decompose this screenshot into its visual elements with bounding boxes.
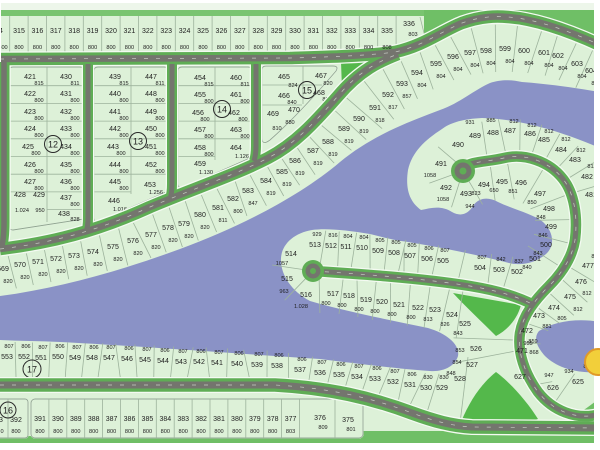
svg-text:603: 603 bbox=[571, 61, 583, 68]
svg-text:806: 806 bbox=[336, 362, 345, 368]
svg-text:456: 456 bbox=[192, 110, 204, 117]
svg-text:800: 800 bbox=[250, 429, 259, 435]
svg-text:820: 820 bbox=[74, 266, 83, 272]
svg-text:963: 963 bbox=[279, 289, 288, 295]
svg-text:326: 326 bbox=[216, 28, 228, 35]
svg-text:570: 570 bbox=[14, 262, 26, 269]
svg-text:800: 800 bbox=[232, 429, 241, 435]
svg-text:509: 509 bbox=[372, 248, 384, 255]
svg-text:548: 548 bbox=[86, 355, 98, 362]
svg-text:812: 812 bbox=[573, 307, 582, 313]
svg-text:800: 800 bbox=[214, 429, 223, 435]
svg-text:800: 800 bbox=[34, 98, 43, 104]
svg-text:804: 804 bbox=[558, 66, 567, 72]
svg-text:448: 448 bbox=[145, 91, 157, 98]
svg-text:592: 592 bbox=[382, 92, 394, 99]
svg-text:805: 805 bbox=[391, 240, 400, 246]
svg-text:885: 885 bbox=[486, 118, 495, 124]
svg-text:424: 424 bbox=[24, 126, 36, 133]
svg-text:521: 521 bbox=[393, 302, 405, 309]
svg-text:806: 806 bbox=[234, 351, 243, 357]
svg-text:590: 590 bbox=[353, 116, 365, 123]
svg-text:386: 386 bbox=[124, 416, 136, 423]
svg-text:539: 539 bbox=[251, 362, 263, 369]
svg-text:482: 482 bbox=[581, 174, 593, 181]
svg-text:800: 800 bbox=[200, 117, 209, 123]
svg-text:325: 325 bbox=[197, 28, 209, 35]
svg-text:457: 457 bbox=[194, 127, 206, 134]
svg-text:534: 534 bbox=[351, 374, 363, 381]
svg-text:425: 425 bbox=[22, 144, 34, 151]
svg-text:1057: 1057 bbox=[276, 261, 288, 267]
svg-text:475: 475 bbox=[564, 294, 576, 301]
svg-text:800: 800 bbox=[354, 307, 363, 313]
svg-text:815: 815 bbox=[34, 81, 43, 87]
svg-text:800: 800 bbox=[70, 98, 79, 104]
svg-text:13: 13 bbox=[133, 137, 143, 147]
svg-text:530: 530 bbox=[420, 385, 432, 392]
svg-text:800: 800 bbox=[70, 186, 79, 192]
svg-text:800: 800 bbox=[268, 429, 277, 435]
svg-text:800: 800 bbox=[204, 99, 213, 105]
svg-text:854: 854 bbox=[452, 360, 461, 366]
svg-text:820: 820 bbox=[133, 251, 142, 257]
svg-text:800: 800 bbox=[11, 429, 20, 435]
svg-text:514: 514 bbox=[285, 251, 297, 258]
svg-text:474: 474 bbox=[548, 305, 560, 312]
svg-text:598: 598 bbox=[480, 48, 492, 55]
svg-text:15: 15 bbox=[302, 86, 312, 96]
svg-text:842: 842 bbox=[496, 257, 505, 263]
svg-text:573: 573 bbox=[68, 253, 80, 260]
svg-text:527: 527 bbox=[466, 362, 478, 369]
svg-text:519: 519 bbox=[360, 297, 372, 304]
svg-text:376: 376 bbox=[314, 415, 326, 422]
svg-text:467: 467 bbox=[315, 73, 327, 80]
svg-text:501: 501 bbox=[529, 256, 541, 263]
svg-text:597: 597 bbox=[464, 50, 476, 57]
svg-text:800: 800 bbox=[161, 429, 170, 435]
svg-text:800: 800 bbox=[119, 98, 128, 104]
svg-text:384: 384 bbox=[159, 416, 171, 423]
svg-text:828: 828 bbox=[70, 217, 79, 223]
svg-text:800: 800 bbox=[204, 134, 213, 140]
svg-text:442: 442 bbox=[109, 126, 121, 133]
svg-text:800: 800 bbox=[155, 133, 164, 139]
svg-text:811: 811 bbox=[71, 81, 80, 87]
svg-text:430: 430 bbox=[60, 74, 72, 81]
svg-text:12: 12 bbox=[48, 140, 58, 150]
svg-text:323: 323 bbox=[160, 28, 172, 35]
svg-text:545: 545 bbox=[139, 357, 151, 364]
svg-text:470: 470 bbox=[288, 107, 300, 114]
svg-text:807: 807 bbox=[4, 344, 13, 350]
svg-text:452: 452 bbox=[145, 162, 157, 169]
svg-text:381: 381 bbox=[213, 416, 225, 423]
svg-text:517: 517 bbox=[327, 291, 339, 298]
svg-text:577: 577 bbox=[145, 232, 157, 239]
svg-text:800: 800 bbox=[106, 45, 115, 51]
svg-text:525: 525 bbox=[459, 321, 471, 328]
svg-text:929: 929 bbox=[312, 232, 321, 238]
svg-text:542: 542 bbox=[193, 359, 205, 366]
svg-text:465: 465 bbox=[278, 74, 290, 81]
svg-text:800: 800 bbox=[364, 45, 373, 51]
svg-text:800: 800 bbox=[155, 169, 164, 175]
svg-text:506: 506 bbox=[421, 256, 433, 263]
svg-text:801: 801 bbox=[346, 427, 355, 433]
svg-text:463: 463 bbox=[230, 127, 242, 134]
svg-text:332: 332 bbox=[326, 28, 338, 35]
svg-text:543: 543 bbox=[175, 359, 187, 366]
svg-text:800: 800 bbox=[240, 134, 249, 140]
svg-text:599: 599 bbox=[499, 46, 511, 53]
svg-text:437: 437 bbox=[60, 195, 72, 202]
svg-text:934: 934 bbox=[564, 369, 573, 375]
svg-text:316: 316 bbox=[32, 28, 44, 35]
svg-text:492: 492 bbox=[440, 185, 452, 192]
svg-text:387: 387 bbox=[106, 416, 118, 423]
svg-text:800: 800 bbox=[196, 429, 205, 435]
svg-text:806: 806 bbox=[196, 349, 205, 355]
svg-text:334: 334 bbox=[363, 28, 375, 35]
svg-text:800: 800 bbox=[70, 116, 79, 122]
svg-text:820: 820 bbox=[200, 225, 209, 231]
svg-text:800: 800 bbox=[34, 169, 43, 175]
svg-text:518: 518 bbox=[343, 293, 355, 300]
svg-text:444: 444 bbox=[109, 162, 121, 169]
svg-text:807: 807 bbox=[254, 352, 263, 358]
svg-text:531: 531 bbox=[404, 382, 416, 389]
svg-text:804: 804 bbox=[544, 63, 553, 69]
svg-text:800: 800 bbox=[321, 301, 330, 307]
svg-text:826: 826 bbox=[440, 322, 449, 328]
svg-text:487: 487 bbox=[504, 128, 516, 135]
svg-text:800: 800 bbox=[235, 45, 244, 51]
svg-text:800: 800 bbox=[179, 429, 188, 435]
svg-text:503: 503 bbox=[493, 267, 505, 274]
svg-text:820: 820 bbox=[56, 269, 65, 275]
svg-text:625: 625 bbox=[572, 379, 584, 386]
svg-text:800: 800 bbox=[346, 45, 355, 51]
svg-text:840: 840 bbox=[287, 100, 296, 106]
svg-text:471: 471 bbox=[516, 348, 528, 355]
svg-text:800: 800 bbox=[35, 429, 44, 435]
svg-text:431: 431 bbox=[60, 91, 72, 98]
svg-text:583: 583 bbox=[242, 188, 254, 195]
svg-text:600: 600 bbox=[518, 48, 530, 55]
svg-text:385: 385 bbox=[142, 416, 154, 423]
svg-text:817: 817 bbox=[388, 105, 397, 111]
svg-text:804: 804 bbox=[417, 83, 426, 89]
svg-text:429: 429 bbox=[33, 192, 45, 199]
svg-text:803: 803 bbox=[408, 32, 417, 38]
svg-text:812: 812 bbox=[527, 123, 536, 129]
svg-text:819: 819 bbox=[328, 152, 337, 158]
svg-text:529: 529 bbox=[436, 385, 448, 392]
svg-text:510: 510 bbox=[356, 245, 368, 252]
svg-text:830: 830 bbox=[423, 375, 432, 381]
svg-text:824: 824 bbox=[288, 83, 297, 89]
svg-text:494: 494 bbox=[478, 182, 490, 189]
svg-text:439: 439 bbox=[109, 74, 121, 81]
svg-text:800: 800 bbox=[217, 45, 226, 51]
svg-text:811: 811 bbox=[219, 218, 228, 224]
svg-text:800: 800 bbox=[155, 151, 164, 157]
svg-text:318: 318 bbox=[68, 28, 80, 35]
svg-text:880: 880 bbox=[285, 120, 294, 126]
svg-text:800: 800 bbox=[143, 429, 152, 435]
svg-text:435: 435 bbox=[60, 162, 72, 169]
svg-text:800: 800 bbox=[327, 45, 336, 51]
svg-text:536: 536 bbox=[314, 370, 326, 377]
svg-text:3: 3 bbox=[0, 417, 3, 424]
svg-text:812: 812 bbox=[561, 137, 570, 143]
svg-text:820: 820 bbox=[168, 238, 177, 244]
svg-text:950: 950 bbox=[35, 208, 44, 214]
svg-text:800: 800 bbox=[143, 45, 152, 51]
svg-text:438: 438 bbox=[58, 211, 70, 218]
svg-text:460: 460 bbox=[230, 75, 242, 82]
svg-text:627: 627 bbox=[514, 374, 526, 381]
svg-text:805: 805 bbox=[557, 316, 566, 322]
svg-text:820: 820 bbox=[151, 245, 160, 251]
svg-text:850: 850 bbox=[527, 200, 536, 206]
svg-text:549: 549 bbox=[69, 355, 81, 362]
svg-text:810: 810 bbox=[272, 126, 281, 132]
svg-text:540: 540 bbox=[231, 361, 243, 368]
svg-text:847: 847 bbox=[248, 201, 257, 207]
svg-text:820: 820 bbox=[184, 234, 193, 240]
svg-text:804: 804 bbox=[486, 61, 495, 67]
svg-text:807: 807 bbox=[214, 350, 223, 356]
svg-text:454: 454 bbox=[194, 75, 206, 82]
svg-text:382: 382 bbox=[195, 416, 207, 423]
svg-text:800: 800 bbox=[180, 45, 189, 51]
svg-text:427: 427 bbox=[24, 179, 36, 186]
svg-text:380: 380 bbox=[231, 416, 243, 423]
svg-text:807: 807 bbox=[477, 255, 486, 261]
svg-text:819: 819 bbox=[282, 182, 291, 188]
svg-text:800: 800 bbox=[53, 429, 62, 435]
svg-text:800: 800 bbox=[125, 45, 134, 51]
svg-text:428: 428 bbox=[14, 192, 26, 199]
svg-text:436: 436 bbox=[60, 179, 72, 186]
svg-text:317: 317 bbox=[50, 28, 62, 35]
svg-text:955: 955 bbox=[523, 341, 532, 347]
svg-text:389: 389 bbox=[70, 416, 82, 423]
svg-text:806: 806 bbox=[274, 353, 283, 359]
svg-text:819: 819 bbox=[266, 191, 275, 197]
svg-text:329: 329 bbox=[271, 28, 283, 35]
svg-text:813: 813 bbox=[423, 317, 432, 323]
svg-text:800: 800 bbox=[34, 133, 43, 139]
svg-text:483: 483 bbox=[569, 157, 581, 164]
svg-text:580: 580 bbox=[194, 212, 206, 219]
svg-text:379: 379 bbox=[249, 416, 261, 423]
svg-text:808: 808 bbox=[382, 45, 391, 51]
svg-text:331: 331 bbox=[308, 28, 320, 35]
svg-text:319: 319 bbox=[87, 28, 99, 35]
svg-text:585: 585 bbox=[276, 169, 288, 176]
svg-text:504: 504 bbox=[474, 265, 486, 272]
svg-text:806: 806 bbox=[160, 348, 169, 354]
svg-text:800: 800 bbox=[387, 312, 396, 318]
svg-text:330: 330 bbox=[289, 28, 301, 35]
svg-text:375: 375 bbox=[342, 417, 354, 424]
svg-text:507: 507 bbox=[404, 253, 416, 260]
svg-text:800: 800 bbox=[70, 133, 79, 139]
svg-text:819: 819 bbox=[313, 161, 322, 167]
svg-text:469: 469 bbox=[267, 111, 279, 118]
svg-text:800: 800 bbox=[31, 151, 40, 157]
svg-text:315: 315 bbox=[13, 28, 25, 35]
svg-text:800: 800 bbox=[33, 45, 42, 51]
svg-text:800: 800 bbox=[238, 117, 247, 123]
svg-text:579: 579 bbox=[178, 221, 190, 228]
svg-text:426: 426 bbox=[24, 162, 36, 169]
svg-text:572: 572 bbox=[50, 256, 62, 263]
svg-text:815: 815 bbox=[204, 82, 213, 88]
svg-text:584: 584 bbox=[260, 178, 272, 185]
svg-text:807: 807 bbox=[317, 360, 326, 366]
svg-text:477: 477 bbox=[582, 263, 594, 270]
svg-text:588: 588 bbox=[322, 139, 334, 146]
svg-text:335: 335 bbox=[381, 28, 393, 35]
svg-text:807: 807 bbox=[390, 369, 399, 375]
svg-text:499: 499 bbox=[545, 224, 557, 231]
svg-text:820: 820 bbox=[3, 279, 12, 285]
svg-text:575: 575 bbox=[107, 244, 119, 251]
svg-text:445: 445 bbox=[109, 179, 121, 186]
svg-text:800: 800 bbox=[88, 45, 97, 51]
svg-text:800: 800 bbox=[162, 45, 171, 51]
svg-text:843: 843 bbox=[453, 331, 462, 337]
svg-text:498: 498 bbox=[543, 206, 555, 213]
svg-text:327: 327 bbox=[234, 28, 246, 35]
svg-text:853: 853 bbox=[455, 348, 464, 354]
svg-text:533: 533 bbox=[369, 376, 381, 383]
svg-text:16: 16 bbox=[3, 406, 13, 416]
svg-text:800: 800 bbox=[107, 429, 116, 435]
svg-text:800: 800 bbox=[70, 169, 79, 175]
svg-text:806: 806 bbox=[21, 344, 30, 350]
svg-text:485: 485 bbox=[538, 137, 550, 144]
svg-text:440: 440 bbox=[109, 91, 121, 98]
svg-text:811: 811 bbox=[241, 82, 250, 88]
svg-text:453: 453 bbox=[144, 182, 156, 189]
svg-text:551: 551 bbox=[35, 355, 47, 362]
svg-text:464: 464 bbox=[230, 145, 242, 152]
svg-text:806: 806 bbox=[297, 357, 306, 363]
svg-text:800: 800 bbox=[70, 151, 79, 157]
svg-text:449: 449 bbox=[145, 109, 157, 116]
svg-text:324: 324 bbox=[179, 28, 191, 35]
svg-text:390: 390 bbox=[52, 416, 64, 423]
svg-text:450: 450 bbox=[145, 126, 157, 133]
svg-text:459: 459 bbox=[194, 161, 206, 168]
svg-text:815: 815 bbox=[119, 81, 128, 87]
svg-text:806: 806 bbox=[55, 344, 64, 350]
svg-text:321: 321 bbox=[124, 28, 136, 35]
svg-text:800: 800 bbox=[70, 45, 79, 51]
svg-text:800: 800 bbox=[119, 116, 128, 122]
svg-text:488: 488 bbox=[487, 130, 499, 137]
svg-text:502: 502 bbox=[511, 269, 523, 276]
svg-text:804: 804 bbox=[453, 67, 462, 73]
svg-text:441: 441 bbox=[109, 109, 121, 116]
svg-text:508: 508 bbox=[388, 250, 400, 257]
svg-text:800: 800 bbox=[51, 45, 60, 51]
svg-text:818: 818 bbox=[375, 118, 384, 124]
svg-text:466: 466 bbox=[278, 93, 290, 100]
svg-text:851: 851 bbox=[508, 189, 517, 195]
svg-text:432: 432 bbox=[60, 109, 72, 116]
svg-text:520: 520 bbox=[376, 299, 388, 306]
svg-text:809: 809 bbox=[318, 425, 327, 431]
svg-text:806: 806 bbox=[89, 345, 98, 351]
svg-text:528: 528 bbox=[454, 376, 466, 383]
svg-text:800: 800 bbox=[204, 152, 213, 158]
svg-text:804: 804 bbox=[359, 235, 368, 241]
svg-text:576: 576 bbox=[127, 238, 139, 245]
svg-text:800: 800 bbox=[119, 169, 128, 175]
svg-text:455: 455 bbox=[194, 92, 206, 99]
svg-text:804: 804 bbox=[436, 74, 445, 80]
svg-text:513: 513 bbox=[309, 242, 321, 249]
svg-text:819: 819 bbox=[359, 129, 368, 135]
svg-text:800: 800 bbox=[155, 116, 164, 122]
svg-text:806: 806 bbox=[124, 346, 133, 352]
svg-text:800: 800 bbox=[309, 45, 318, 51]
svg-text:515: 515 bbox=[281, 276, 293, 283]
svg-text:591: 591 bbox=[369, 105, 381, 112]
svg-text:458: 458 bbox=[194, 145, 206, 152]
svg-text:848: 848 bbox=[446, 371, 455, 377]
svg-text:800: 800 bbox=[233, 209, 242, 215]
svg-text:804: 804 bbox=[470, 63, 479, 69]
svg-text:800: 800 bbox=[370, 309, 379, 315]
svg-text:857: 857 bbox=[402, 94, 411, 100]
svg-text:0: 0 bbox=[0, 429, 3, 435]
svg-text:582: 582 bbox=[227, 196, 239, 203]
svg-text:868: 868 bbox=[529, 350, 538, 356]
svg-text:800: 800 bbox=[155, 98, 164, 104]
svg-text:848: 848 bbox=[536, 215, 545, 221]
svg-text:578: 578 bbox=[162, 225, 174, 232]
svg-text:388: 388 bbox=[88, 416, 100, 423]
svg-text:333: 333 bbox=[344, 28, 356, 35]
svg-text:550: 550 bbox=[52, 354, 64, 361]
svg-text:800: 800 bbox=[70, 202, 79, 208]
svg-text:594: 594 bbox=[411, 70, 423, 77]
svg-text:812: 812 bbox=[582, 291, 591, 297]
svg-text:14: 14 bbox=[217, 105, 227, 115]
svg-text:800: 800 bbox=[119, 186, 128, 192]
svg-text:552: 552 bbox=[18, 354, 30, 361]
svg-text:805: 805 bbox=[407, 243, 416, 249]
svg-text:800: 800 bbox=[116, 151, 125, 157]
svg-text:322: 322 bbox=[142, 28, 154, 35]
svg-text:537: 537 bbox=[294, 367, 306, 374]
svg-text:595: 595 bbox=[430, 61, 442, 68]
svg-text:807: 807 bbox=[142, 347, 151, 353]
svg-text:800: 800 bbox=[290, 45, 299, 51]
svg-text:944: 944 bbox=[465, 204, 474, 210]
svg-text:489: 489 bbox=[469, 133, 481, 140]
svg-text:800: 800 bbox=[254, 45, 263, 51]
svg-text:473: 473 bbox=[533, 313, 545, 320]
